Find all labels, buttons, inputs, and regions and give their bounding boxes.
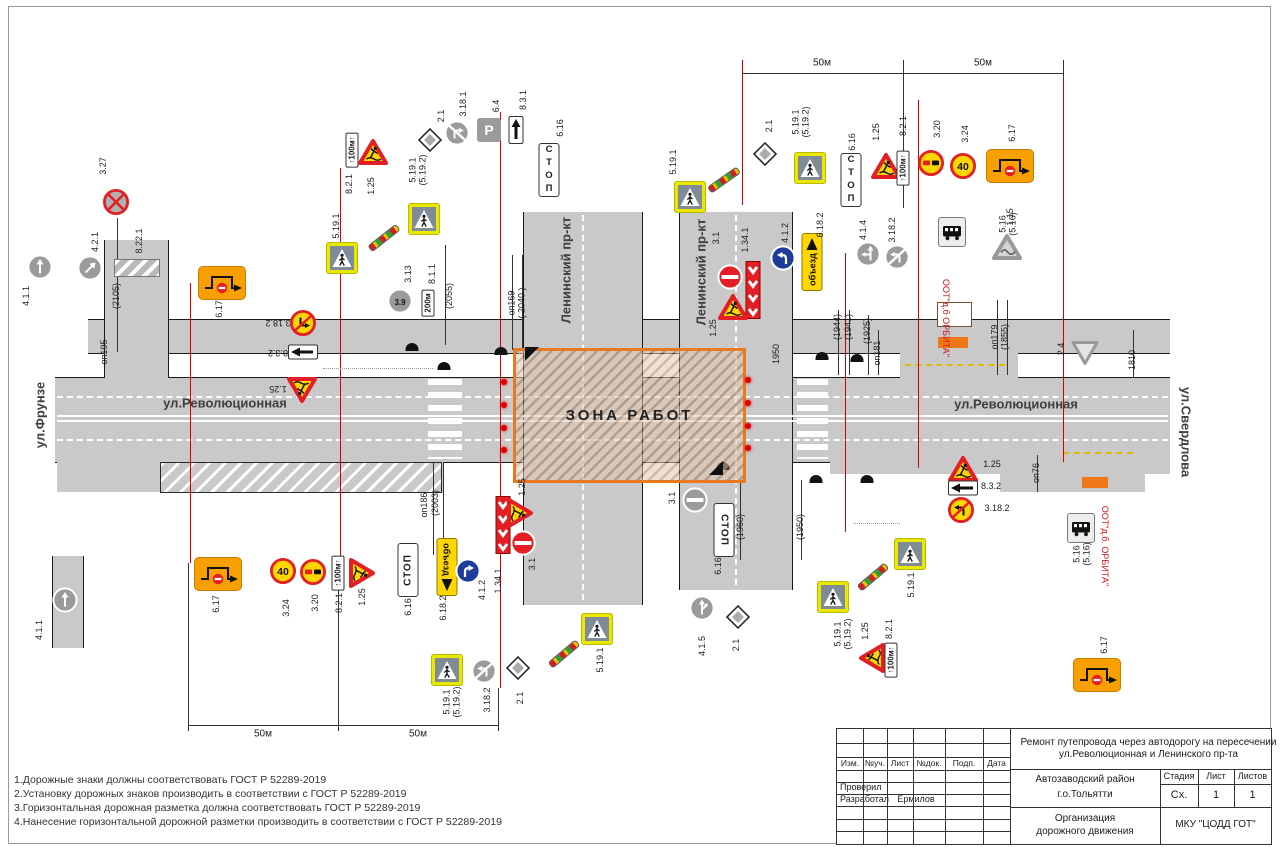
sign-no-entry-3.1-existing	[682, 487, 709, 514]
sign-no-left-3.18.2	[290, 310, 317, 337]
titleblock-grid-line	[837, 743, 1010, 744]
hatched-island	[160, 462, 442, 493]
sign-code-label: 3.18.2	[265, 317, 290, 327]
stop-text: СТОП	[403, 554, 414, 586]
marking-line	[190, 283, 191, 563]
marking-line	[188, 725, 498, 726]
svg-text:40: 40	[957, 161, 969, 173]
sign-code-label: 5.19.1	[332, 213, 342, 238]
sign-dist-plate-8.2.1: ↑100м↑	[346, 132, 359, 167]
sign-roadworks-1.25	[358, 139, 388, 166]
sign-code-label: оп179 (1855)	[990, 324, 1009, 350]
sign-no-left-3.18.2-existing	[471, 658, 498, 685]
tb-sheet-value: 1	[1198, 784, 1234, 807]
sign-dist-plate-8.2.1: ↑100м↑	[332, 555, 345, 590]
sign-no-overtake-3.20	[918, 150, 945, 177]
sign-code-label: 8.2.1	[885, 619, 895, 639]
sign-arrow-plate-8.3.2	[288, 345, 318, 360]
sign-priority-2.1	[751, 140, 779, 168]
stop-text: СТОП	[544, 144, 555, 196]
marking-line	[1063, 60, 1064, 78]
sign-portable-support	[548, 639, 581, 668]
titleblock-grid-line	[1234, 769, 1235, 807]
sign-detour-6.18.2: объезд	[802, 233, 823, 291]
warning-lamp-icon	[745, 400, 751, 406]
sign-code-label: 1.25	[983, 460, 1001, 470]
traffic-signal-icon	[406, 343, 419, 351]
dimension-label: 50м	[254, 729, 272, 740]
pedestrian-crossing-marking	[797, 379, 828, 459]
sign-ped-5.19.1	[582, 614, 612, 644]
titleblock-grid-line	[863, 729, 864, 844]
sign-code-label: 3.18.1	[459, 91, 469, 116]
marking-line	[188, 563, 189, 731]
road-segment	[1000, 461, 1145, 492]
sign-ped-5.19.1	[675, 182, 705, 212]
sign-arrow-plate-8.3.2	[948, 481, 978, 496]
sign-code-label: 5.19.1 (5.19.2)	[442, 686, 461, 717]
sign-roadworks-1.25	[349, 558, 376, 588]
sign-detour-scheme-6.17	[198, 266, 246, 300]
titleblock-grid-line	[837, 794, 1010, 795]
sign-code-label: 1810	[1128, 350, 1138, 370]
bus-stop-platform	[1082, 477, 1108, 488]
warning-lamp-icon	[745, 445, 751, 451]
sign-code-label: оп76	[1032, 463, 1042, 483]
sign-straight-or-left-4.1.4	[855, 241, 882, 268]
detour-arrow-icon	[441, 579, 454, 591]
sign-code-label: 5.19.1 (5.19.2)	[833, 618, 852, 649]
sign-give-way-2.4	[1070, 340, 1100, 367]
sign-code-label: 1950	[772, 344, 782, 364]
tb-col-uch: №уч.	[863, 757, 887, 770]
sign-code-label: 2.1	[732, 639, 742, 652]
sign-height-limit-3.13: 3.9	[387, 288, 414, 315]
warning-lamp-icon	[745, 423, 751, 429]
scheme-canvas: ЗОНА РАБОТул.Революционнаяул.Революционн…	[0, 0, 1280, 847]
sign-priority-2.1	[416, 126, 444, 154]
tb-col-doc: №док.	[913, 757, 945, 770]
sign-speed-40-3.24: 40	[270, 558, 297, 585]
street-name-label: ул.Революционная	[954, 397, 1078, 412]
sign-code-label: 8.22.1	[135, 228, 145, 253]
sign-stop-6.16: СТОП	[714, 503, 735, 557]
dimension-label: 50м	[974, 58, 992, 69]
sign-ped-5.19.1	[432, 655, 462, 685]
street-name-label: ул.Революционная	[163, 396, 287, 411]
sign-code-label: 6.16	[848, 133, 858, 151]
titleblock-grid-line	[1010, 729, 1011, 844]
detour-text: объезд	[807, 253, 817, 286]
sign-no-right-3.18.1	[444, 120, 471, 147]
sign-code-label: 4.1.4	[859, 220, 869, 240]
sign-code-label: 6.18.2	[439, 595, 449, 620]
work-zone: ЗОНА РАБОТ	[513, 348, 746, 483]
titleblock-grid-line	[1010, 807, 1271, 808]
marking-line	[742, 60, 743, 205]
sign-code-label: 1.34.1	[741, 227, 751, 252]
sign-detour-scheme-6.17	[986, 149, 1034, 183]
street-name-label: Ленинский пр-кт	[559, 217, 574, 323]
pedestrian-crossing-marking	[428, 379, 462, 459]
street-name-label: ул.Фрунзе	[33, 382, 48, 448]
sign-code-label: 2.4	[1057, 343, 1067, 356]
sign-no-left-3.18.2	[948, 497, 975, 524]
sign-code-label: 2.1	[516, 692, 526, 705]
traffic-signal-icon	[816, 352, 829, 360]
sign-parking-6.4: P	[477, 118, 501, 142]
sign-dist-plate-8.2.1: ↑100м↑	[897, 150, 910, 185]
tb-organization: МКУ "ЦОДД ГОТ"	[1160, 807, 1271, 844]
traffic-scheme-page: ЗОНА РАБОТул.Революционнаяул.Революционн…	[0, 0, 1280, 847]
svg-text:40: 40	[277, 566, 289, 578]
sign-speed-40-3.24: 40	[950, 153, 977, 180]
sign-code-label: 8.3.1	[519, 90, 529, 110]
tb-city: г.о.Тольятти	[1010, 788, 1160, 803]
svg-text:3.9: 3.9	[394, 298, 406, 307]
sign-code-label: 3.18.2	[483, 687, 493, 712]
ped-sign-face	[330, 246, 354, 270]
titleblock-grid-line	[837, 757, 1010, 758]
sign-code-label: 8.2.1	[345, 174, 355, 194]
sign-code-label: 1.25	[367, 177, 377, 195]
sign-code-label: 6.17	[212, 595, 222, 613]
sign-priority-2.1	[724, 603, 752, 631]
sign-code-label: оп186	[420, 493, 430, 518]
traffic-signal-icon	[495, 347, 508, 355]
sign-dist-plate-8.2.1: ↑100м↑	[885, 642, 898, 677]
marking-line	[845, 253, 846, 532]
sign-arrow-plate-8.3.1	[509, 116, 524, 144]
warning-lamp-icon	[501, 379, 507, 385]
tb-col-podp: Подп.	[945, 757, 983, 770]
sign-code-label: (1944)	[833, 314, 843, 340]
marking-line	[500, 112, 501, 688]
tb-stage-label: Стадия	[1160, 769, 1198, 784]
sign-ped-5.19.1	[795, 153, 825, 183]
tb-sheets-value: 1	[1234, 784, 1271, 807]
sign-code-label: 1.25	[709, 319, 719, 337]
sign-code-label: 6.16	[714, 557, 724, 575]
titleblock-grid-line	[945, 729, 946, 844]
sign-roadworks-1.25	[507, 498, 534, 528]
sign-code-label: 3.18.2	[888, 217, 898, 242]
sign-zone-plate-8.22.1	[114, 259, 160, 277]
tb-district: Автозаводский район	[1010, 773, 1160, 788]
ped-sign-face	[898, 542, 922, 566]
sign-code-label: 1.25	[861, 622, 871, 640]
sign-straight-4.1.1	[52, 587, 79, 614]
sign-code-label: 4.1.2	[781, 223, 791, 243]
sign-code-label: оп169 ( 2040 )	[507, 287, 526, 318]
sign-code-label: (2055)	[445, 283, 455, 309]
sign-code-label: 3.24	[282, 599, 292, 617]
titleblock-grid-line	[983, 729, 984, 844]
sign-code-label: 1.34.1	[494, 568, 504, 593]
sign-stop-6.16: СТОП	[539, 143, 560, 197]
sign-code-label: 1.15	[1006, 208, 1016, 226]
detour-arrow-icon	[806, 238, 819, 250]
sign-straight-4.1.1	[27, 254, 54, 281]
sign-code-label: 6.17	[215, 300, 225, 318]
sign-bus-stop-5.16	[938, 217, 966, 247]
sign-code-label: 4.2.1	[91, 232, 101, 252]
sign-code-label: 4.1.1	[35, 620, 45, 640]
sign-priority-2.1	[504, 654, 532, 682]
work-zone-label: ЗОНА РАБОТ	[566, 407, 694, 424]
sign-code-label: 5.19.1	[669, 149, 679, 174]
tb-developer-name: Ермилов	[887, 794, 945, 806]
note-line: 3.Горизонтальная дорожная разметка должн…	[14, 801, 502, 815]
warning-lamp-icon	[745, 377, 751, 383]
sign-code-label: (2105)	[112, 283, 122, 309]
sign-no-overtake-3.20	[300, 559, 327, 586]
sign-code-label: ООТ"д.б ОРБИТА"	[940, 279, 950, 357]
sign-code-label: 1.25	[358, 588, 368, 606]
dimension-label: 50м	[813, 58, 831, 69]
detour-text: объезд	[442, 543, 452, 576]
sign-code-label: 3.1	[528, 558, 538, 571]
dimension-label: 50м	[409, 729, 427, 740]
sign-ped-5.19.1	[409, 204, 439, 234]
titleblock-grid-line	[837, 831, 1010, 832]
traffic-signal-icon	[438, 362, 451, 370]
warning-lamp-icon	[501, 402, 507, 408]
sign-no-entry-3.1	[717, 264, 744, 291]
traffic-signal-icon	[810, 475, 823, 483]
marking-line	[853, 523, 900, 524]
sign-code-label: 3.27	[99, 157, 109, 175]
sign-code-label: 5.19.1 (5.19.2)	[408, 154, 427, 185]
sign-code-label: 4.1.5	[698, 636, 708, 656]
titleblock-grid-line	[837, 819, 1010, 820]
sign-no-left-3.18.2	[884, 244, 911, 271]
sign-code-label: 6.16	[556, 119, 566, 137]
sign-detour-scheme-6.17	[1073, 658, 1121, 692]
titleblock-grid-line	[1010, 769, 1271, 770]
sign-code-label: 1.25	[872, 123, 882, 141]
sign-code-label: 3.1	[712, 232, 722, 245]
sign-code-label: 3.18.2	[984, 504, 1009, 514]
sign-code-label: 3.24	[961, 125, 971, 143]
sign-code-label: 5.19.1	[596, 647, 606, 672]
sign-code-label: (1941)	[844, 314, 854, 340]
street-name-label: Ленинский пр-кт	[694, 219, 709, 325]
sign-stop-6.16: СТОП	[398, 543, 419, 597]
sign-ped-5.19.1	[327, 243, 357, 273]
titleblock-grid-line	[837, 782, 1010, 783]
sign-code-label: 3.20	[933, 120, 943, 138]
sign-code-label: (1960)	[736, 514, 746, 540]
sign-turn-4.1.2	[770, 245, 797, 272]
sign-code-label: 6.18.2	[816, 212, 826, 237]
marking-line	[498, 688, 499, 731]
warning-lamp-icon	[501, 425, 507, 431]
sign-code-label: 8.2.1	[899, 116, 909, 136]
sign-roadworks-1.25	[287, 377, 317, 404]
stop-text: СТОП	[846, 154, 857, 206]
tb-stage-value: Сх.	[1160, 784, 1198, 807]
tb-doc-type: Организация дорожного движения	[1010, 807, 1160, 844]
warning-lamp-icon	[501, 447, 507, 453]
sign-portable-support	[707, 166, 741, 193]
stop-text: СТОП	[719, 514, 730, 546]
sign-code-label: 5.16 (5.16)	[1072, 542, 1091, 566]
sign-code-label: 2.1	[765, 120, 775, 133]
sign-code-label: 3.13	[404, 265, 414, 283]
sign-code-label: оп181	[873, 341, 883, 366]
bus-stop-zigzag-marking	[1063, 452, 1133, 454]
sign-code-label: 6.17	[1008, 124, 1018, 142]
sign-code-label: 5.19.1	[907, 572, 917, 597]
sign-dist-plate-8.1.1: 200м	[422, 289, 435, 316]
sign-code-label: (1950)	[796, 514, 806, 540]
sign-stop-6.16: СТОП	[841, 153, 862, 207]
bus-stop-zigzag-marking	[905, 364, 1005, 366]
ped-sign-face	[435, 658, 459, 682]
tb-sheets-label: Листов	[1234, 769, 1271, 784]
sign-code-label: 4.1.2	[478, 580, 488, 600]
tb-col-list: Лист	[887, 757, 913, 770]
sign-ped-5.19.1	[895, 539, 925, 569]
sign-code-label: 5.19.1 (5.19.2)	[791, 106, 810, 137]
sign-ped-5.19.1	[818, 582, 848, 612]
note-line: 2.Установку дорожных знаков производить …	[14, 787, 502, 801]
sign-code-label: 1.25	[518, 478, 528, 496]
traffic-signal-icon	[851, 354, 864, 362]
sign-portable-support	[857, 562, 890, 591]
sign-roadworks-1.25	[859, 643, 886, 673]
titleblock-grid-line	[887, 729, 888, 844]
title-block: Изм. №уч. Лист №док. Подп. Дата Проверил…	[836, 728, 1272, 845]
sign-detour-scheme-6.17	[194, 557, 242, 591]
titleblock-grid-line	[837, 806, 1010, 807]
tb-col-data: Дата	[983, 757, 1010, 770]
note-line: 4.Нанесение горизонтальной дорожной разм…	[14, 815, 502, 829]
sign-code-label: (2003)	[431, 490, 441, 516]
sign-code-label: 1.25	[269, 383, 287, 393]
tb-sheet-label: Лист	[1198, 769, 1234, 784]
sign-portable-support	[367, 224, 400, 252]
sign-code-label: ООТ"д.б. ОРБИТА"	[1099, 506, 1109, 586]
sign-slippery-1.15	[992, 234, 1022, 261]
titleblock-grid-line	[913, 729, 914, 844]
ped-sign-face	[412, 207, 436, 231]
sign-code-label: оп195	[100, 340, 110, 365]
tb-col-izm: Изм.	[837, 757, 863, 770]
titleblock-grid-line	[1160, 784, 1271, 785]
ped-sign-face	[798, 156, 822, 180]
traffic-signal-icon	[861, 475, 874, 483]
sign-roadworks-1.25	[948, 456, 978, 483]
titleblock-grid-line	[837, 770, 1010, 771]
sign-code-label: 4.1.1	[22, 286, 32, 306]
notes-block: 1.Дорожные знаки должны соответствовать …	[14, 773, 502, 829]
sign-no-entry-3.1	[510, 530, 537, 557]
sign-straight-or-right-4.1.5	[689, 595, 716, 622]
sign-bus-stop-5.16	[1067, 513, 1095, 543]
sign-no-stopping-3.27	[103, 189, 130, 216]
note-line: 1.Дорожные знаки должны соответствовать …	[14, 773, 502, 787]
sign-right-4.2.1	[77, 255, 104, 282]
sign-code-label: 8.3.2	[981, 482, 1001, 492]
sign-roadworks-1.25	[718, 294, 748, 321]
marking-line	[323, 368, 433, 369]
tb-project-title: Ремонт путепровода через автодорогу на п…	[1010, 729, 1280, 769]
sign-code-label: 8.1.1	[428, 264, 438, 284]
sign-code-label: 6.16	[404, 598, 414, 616]
sign-code-label: 8.2.1	[335, 593, 345, 613]
sign-code-label: 3.20	[311, 594, 321, 612]
sign-code-label: 2.1	[437, 110, 447, 123]
sign-code-label: 6.4	[492, 100, 502, 113]
ped-sign-face	[821, 585, 845, 609]
ped-sign-face	[678, 185, 702, 209]
ped-sign-face	[585, 617, 609, 641]
titleblock-grid-line	[1198, 769, 1199, 807]
sign-code-label: 6.17	[1100, 636, 1110, 654]
sign-code-label: 8.3.2	[268, 347, 288, 357]
sign-code-label: 3.1	[668, 492, 678, 505]
street-name-label: ул.Свердлова	[1179, 387, 1194, 477]
